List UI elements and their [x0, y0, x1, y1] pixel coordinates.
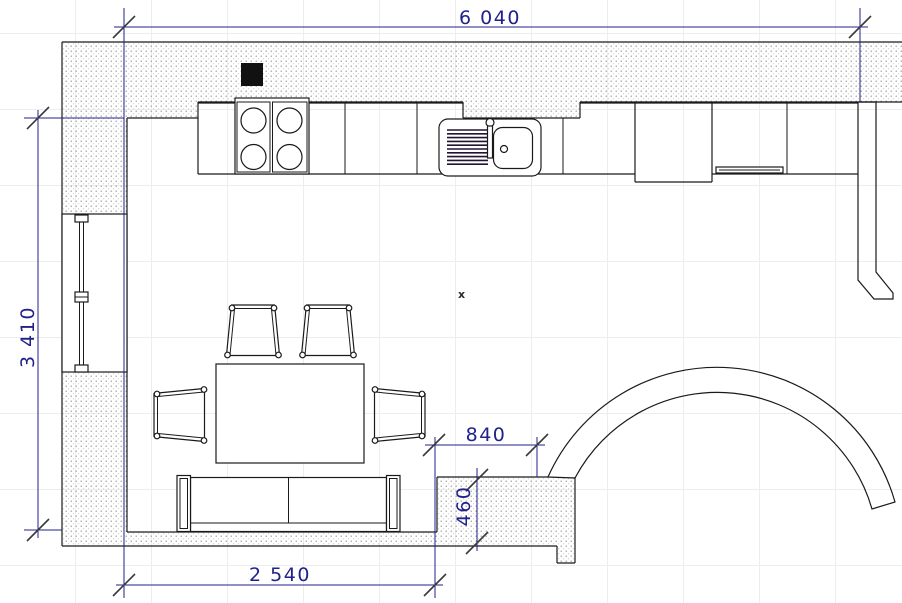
- faucet-stem: [488, 126, 493, 158]
- window-bottom-cap: [75, 365, 88, 372]
- sink-unit[interactable]: [439, 119, 541, 177]
- chair-left[interactable]: [154, 387, 207, 444]
- door-jamb-stub[interactable]: [557, 532, 575, 563]
- faucet-knob: [486, 119, 494, 127]
- hood-vent-symbol[interactable]: [241, 63, 263, 86]
- dim-pier-depth-label: 460: [453, 486, 475, 527]
- dim-total-width-label: 6 040: [459, 7, 521, 29]
- chair-right[interactable]: [372, 387, 425, 444]
- sink-bowl: [494, 128, 533, 169]
- dim-total-height-label: 3 410: [17, 306, 39, 368]
- burner: [277, 108, 302, 133]
- sink-drain: [501, 146, 508, 153]
- top-wall[interactable]: [62, 42, 902, 102]
- left-wall-lower[interactable]: [62, 372, 127, 546]
- left-wall-upper[interactable]: [62, 118, 127, 214]
- right-wall-hatched[interactable]: [858, 102, 893, 299]
- chair-top-left[interactable]: [225, 305, 282, 358]
- protruding-unit[interactable]: [635, 103, 712, 182]
- chair-top-right[interactable]: [300, 305, 357, 358]
- window[interactable]: [62, 214, 127, 372]
- dishwasher-front[interactable]: [716, 167, 783, 173]
- stove[interactable]: [235, 98, 309, 174]
- window-top-cap: [75, 215, 88, 222]
- burner: [241, 145, 266, 170]
- dim-pier-width-label: 840: [466, 424, 507, 446]
- floor-plan-canvas: x 6 040 3 410 2 540 840: [0, 0, 902, 603]
- bottom-wall[interactable]: [127, 532, 557, 546]
- top-left-corner-wall[interactable]: [62, 102, 198, 118]
- arched-curved-wall[interactable]: [548, 367, 895, 509]
- dining-table[interactable]: [216, 364, 364, 463]
- sofa-armrest-right: [387, 476, 401, 532]
- dim-pier-width[interactable]: 840: [423, 424, 548, 477]
- burner: [277, 145, 302, 170]
- burner: [241, 108, 266, 133]
- sofa[interactable]: [177, 476, 400, 532]
- room-center-marker[interactable]: x: [458, 288, 465, 301]
- floor-plan-drawing: x 6 040 3 410 2 540 840: [0, 0, 902, 603]
- sofa-armrest-left: [177, 476, 191, 532]
- dim-sofa-wall-width-label: 2 540: [249, 564, 311, 586]
- sink-back-wall-chunk[interactable]: [463, 102, 580, 118]
